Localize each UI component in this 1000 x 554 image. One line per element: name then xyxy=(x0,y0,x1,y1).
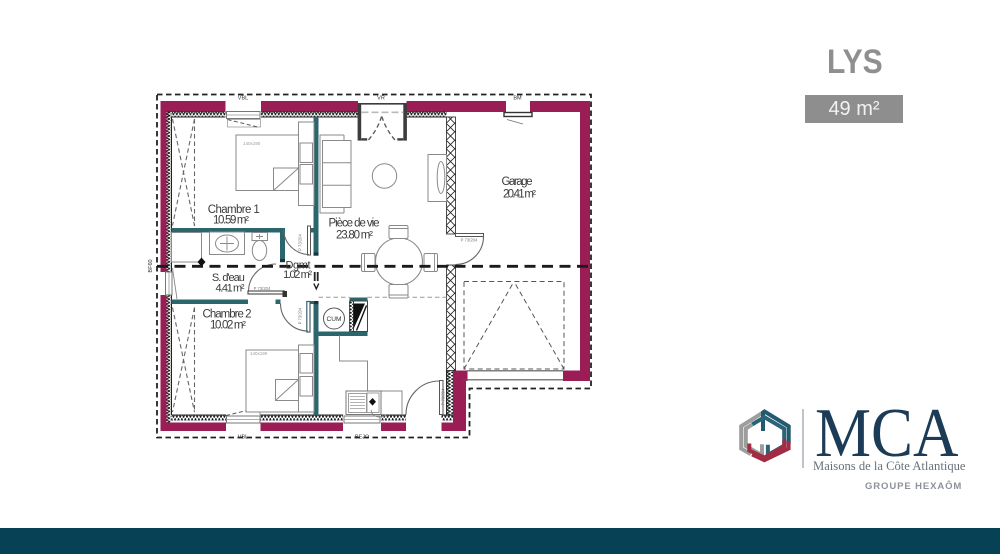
svg-text:P 73/204: P 73/204 xyxy=(254,286,271,291)
svg-text:P 73/204: P 73/204 xyxy=(461,238,478,243)
svg-text:P 73/204: P 73/204 xyxy=(298,233,303,250)
svg-text:10.02 m²: 10.02 m² xyxy=(210,320,246,332)
svg-text:VBL: VBL xyxy=(238,96,248,102)
svg-text:140x190: 140x190 xyxy=(250,351,268,356)
svg-text:Pièce de vie: Pièce de vie xyxy=(329,217,380,229)
svg-text:140x190: 140x190 xyxy=(243,141,261,146)
svg-text:VBL: VBL xyxy=(238,435,248,441)
svg-text:BF60: BF60 xyxy=(148,259,154,272)
svg-text:Garage: Garage xyxy=(502,176,533,188)
svg-text:CUM: CUM xyxy=(327,316,342,323)
svg-text:VR: VR xyxy=(377,96,385,102)
svg-text:P 73/204: P 73/204 xyxy=(441,388,446,405)
svg-text:4.41 m²: 4.41 m² xyxy=(216,283,245,295)
svg-text:1.02 m²: 1.02 m² xyxy=(283,269,312,281)
svg-text:23.80 m²: 23.80 m² xyxy=(336,230,373,242)
svg-text:BM: BM xyxy=(513,96,522,102)
svg-text:10.59 m²: 10.59 m² xyxy=(213,215,249,227)
svg-text:BEJO: BEJO xyxy=(355,435,370,441)
svg-text:P 73/204: P 73/204 xyxy=(298,307,303,324)
svg-text:20.41 m²: 20.41 m² xyxy=(503,189,536,201)
